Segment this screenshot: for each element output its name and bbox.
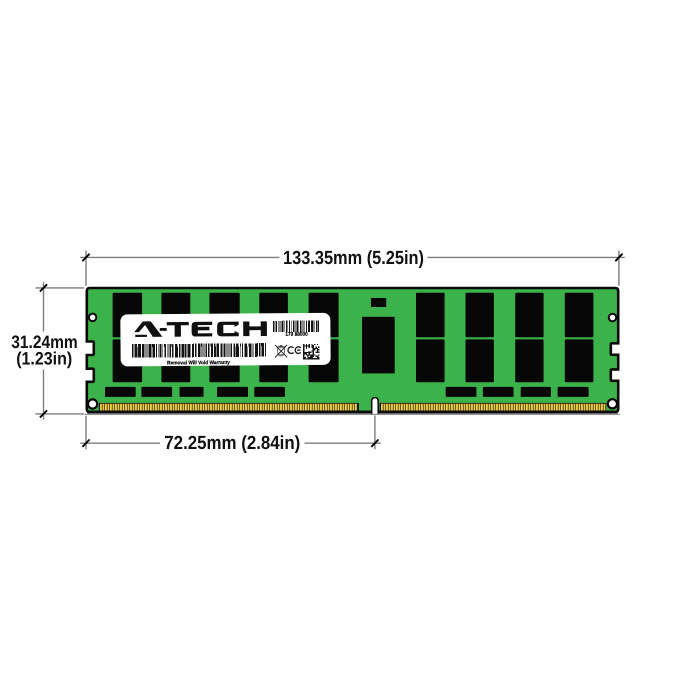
svg-text:Removal Will Void Warranty: Removal Will Void Warranty: [167, 360, 230, 366]
svg-text:133.35mm (5.25in): 133.35mm (5.25in): [283, 248, 424, 269]
svg-text:72.25mm (2.84in): 72.25mm (2.84in): [164, 433, 300, 454]
svg-text:179 88000: 179 88000: [285, 332, 307, 338]
svg-text:(1.23in): (1.23in): [16, 349, 72, 369]
